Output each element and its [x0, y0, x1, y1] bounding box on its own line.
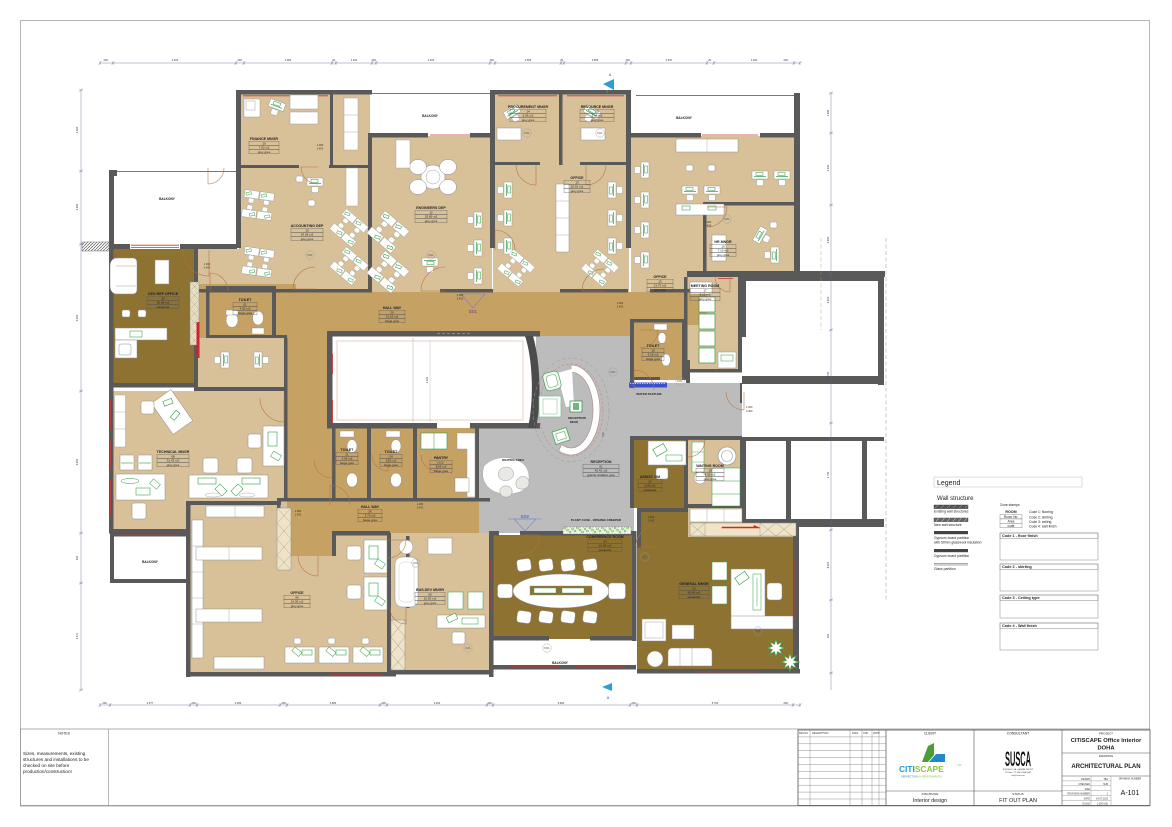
svg-text:grey gres: grey gres [591, 118, 604, 122]
svg-text:Room No.: Room No. [1004, 515, 1018, 519]
svg-text:D01: D01 [642, 555, 648, 559]
svg-text:1.000: 1.000 [204, 262, 211, 266]
svg-text:DATE: DATE [852, 732, 859, 735]
svg-text:200,: 200, [631, 701, 636, 705]
svg-text:7.00: 7.00 [601, 432, 605, 438]
svg-text:5.700: 5.700 [712, 701, 719, 705]
svg-text:1.400: 1.400 [351, 58, 358, 62]
svg-text:grey gres: grey gres [258, 150, 271, 154]
svg-text:beige gres: beige gres [384, 463, 399, 467]
svg-text:200,: 200, [281, 701, 286, 705]
svg-text:2.547: 2.547 [666, 58, 673, 62]
svg-text:grey gres: grey gres [167, 463, 180, 467]
svg-text:BUS.DEV MNGR: BUS.DEV MNGR [416, 588, 444, 592]
svg-text:CONSULTANT: CONSULTANT [1007, 732, 1029, 736]
svg-text:DESCRIPTION: DESCRIPTION [812, 732, 829, 735]
svg-text:TOILET: TOILET [239, 298, 253, 302]
svg-text:3.900: 3.900 [75, 458, 79, 465]
svg-text:TECHNICAL MNGR: TECHNICAL MNGR [157, 450, 190, 454]
svg-text:ARCHITECTURAL PLAN: ARCHITECTURAL PLAN [1071, 764, 1140, 770]
svg-text:4.200: 4.200 [428, 58, 435, 62]
svg-text:20,: 20, [708, 58, 712, 62]
svg-text:FIT OUT PLAN: FIT OUT PLAN [999, 798, 1037, 804]
svg-text:CHECKED: CHECKED [1078, 783, 1090, 786]
svg-text:2.505: 2.505 [525, 58, 532, 62]
svg-text:2.300: 2.300 [75, 126, 79, 133]
svg-text:REVISION NUMBER: REVISION NUMBER [1068, 793, 1091, 796]
svg-text:checked on site before: checked on site before [23, 763, 70, 768]
svg-text:SUSCA LLC AL-QASSIM GROUP: SUSCA LLC AL-QASSIM GROUP [1003, 768, 1034, 771]
svg-text:beige gres: beige gres [238, 311, 253, 315]
svg-text:300: 300 [75, 555, 79, 560]
svg-text:TBA: TBA [1103, 778, 1108, 781]
svg-text:BALKONY: BALKONY [159, 197, 176, 201]
svg-text:8.200: 8.200 [826, 561, 830, 568]
svg-text:D01: D01 [677, 379, 683, 383]
svg-text:OFFICE: OFFICE [653, 275, 667, 279]
svg-text:2.750: 2.750 [826, 471, 830, 478]
svg-text:Code 2 - skirting: Code 2 - skirting [1002, 565, 1032, 569]
svg-text:beige gres: beige gres [434, 469, 449, 473]
svg-text:beige gres: beige gres [646, 357, 661, 361]
svg-text:DRAWING NUMBER: DRAWING NUMBER [1119, 778, 1142, 781]
svg-text:PO Box : PT 456 DOHA QAT: PO Box : PT 456 DOHA QAT [1005, 771, 1031, 774]
svg-text:20,: 20, [332, 58, 336, 62]
svg-text:1.000: 1.000 [648, 515, 655, 519]
svg-text:BALKONY: BALKONY [142, 560, 159, 564]
svg-text:200,: 200, [783, 701, 788, 705]
svg-text:200,: 200, [191, 701, 196, 705]
svg-text:HALL WAY: HALL WAY [361, 505, 380, 509]
svg-text:1.480: 1.480 [826, 109, 830, 116]
svg-text:structures and installations t: structures and installations to be [23, 757, 89, 762]
svg-text:200,: 200, [783, 58, 788, 62]
svg-text:5.000: 5.000 [75, 314, 79, 321]
svg-text:2.400: 2.400 [826, 296, 830, 303]
svg-text:REV.NO: REV.NO [799, 732, 808, 735]
svg-text:Code 1: flooring: Code 1: flooring [1029, 510, 1053, 514]
svg-text:Glass partition: Glass partition [934, 567, 956, 571]
svg-text:2.750: 2.750 [826, 371, 830, 378]
svg-text:grey gres: grey gres [522, 118, 535, 122]
svg-text:production/construction!: production/construction! [23, 769, 72, 774]
svg-text:D01: D01 [465, 646, 471, 650]
svg-text:Gypsum board partition: Gypsum board partition [934, 536, 969, 540]
svg-text:200: 200 [826, 633, 830, 638]
svg-text:ASSIST. GM: ASSIST. GM [640, 475, 660, 479]
svg-text:D01: D01 [413, 561, 419, 565]
svg-text:grey gres: grey gres [571, 189, 584, 193]
svg-text:2.417: 2.417 [75, 632, 79, 639]
svg-text:GENERAL MNGR: GENERAL MNGR [679, 582, 709, 586]
svg-text:1.200: 1.200 [751, 58, 758, 62]
svg-text:beige gres: beige gres [340, 461, 355, 465]
svg-text:2.460: 2.460 [826, 236, 830, 243]
svg-text:E02: E02 [521, 514, 530, 519]
svg-text:grey gres: grey gres [717, 253, 730, 257]
svg-text:2.400: 2.400 [617, 305, 624, 309]
svg-text:NOTES: NOTES [58, 732, 70, 736]
svg-text:20,: 20, [560, 58, 564, 62]
svg-text:1.000: 1.000 [705, 220, 712, 224]
svg-text:2.400: 2.400 [648, 519, 655, 523]
svg-text:Wall structure: Wall structure [937, 496, 974, 502]
svg-text:New wall structure: New wall structure [934, 523, 962, 527]
svg-text:TOILET: TOILET [385, 450, 399, 454]
svg-text:SUB: SUB [1103, 783, 1108, 786]
svg-text:34.07.2013: 34.07.2013 [1096, 798, 1109, 801]
svg-text:PERFECTION IN PERFORMANCE: PERFECTION IN PERFORMANCE [901, 775, 942, 779]
svg-text:2.555: 2.555 [592, 58, 599, 62]
svg-text:parquette: parquette [644, 488, 657, 492]
svg-text:PROJECT: PROJECT [1099, 732, 1113, 736]
svg-text:HALL WAY: HALL WAY [383, 306, 402, 310]
svg-text:D01: D01 [428, 253, 434, 257]
svg-text:grey gres: grey gres [699, 297, 712, 301]
svg-text:DISCIPLINE: DISCIPLINE [922, 792, 939, 796]
svg-text:grey gres: grey gres [425, 219, 438, 223]
svg-text:BALKONY: BALKONY [422, 114, 439, 118]
svg-text:beige gres: beige gres [385, 319, 400, 323]
svg-text:DESK: DESK [570, 420, 579, 424]
svg-text:3.000: 3.000 [285, 58, 292, 62]
svg-text:2.100: 2.100 [425, 376, 429, 383]
svg-text:FINANCE MNGR: FINANCE MNGR [250, 137, 278, 141]
svg-text:RESOURCE MNGR: RESOURCE MNGR [581, 105, 614, 109]
svg-text:CITISCAPE: CITISCAPE [899, 764, 944, 774]
svg-text:granite imitation gres: granite imitation gres [587, 473, 615, 477]
svg-text:SIZE: SIZE [1085, 788, 1091, 791]
svg-text:parquette: parquette [599, 548, 612, 552]
svg-text:2.400: 2.400 [705, 224, 712, 228]
svg-text:grey gres: grey gres [704, 477, 717, 481]
svg-text:Existing wall structures: Existing wall structures [934, 510, 969, 514]
svg-text:2.677: 2.677 [147, 701, 154, 705]
svg-text:2.400: 2.400 [457, 297, 464, 301]
svg-text:Code 2: skirting: Code 2: skirting [1029, 515, 1053, 519]
svg-text:1:200 (A3): 1:200 (A3) [1097, 803, 1108, 806]
svg-text:Zone stamps: Zone stamps [1000, 503, 1020, 507]
svg-text:2.400: 2.400 [746, 409, 753, 413]
svg-text:Gypsum board partition: Gypsum board partition [934, 554, 969, 558]
svg-text:2.350: 2.350 [75, 203, 79, 210]
svg-text:RECEPTION: RECEPTION [591, 460, 612, 464]
svg-text:1.000: 1.000 [746, 405, 753, 409]
svg-text:OFFICE: OFFICE [290, 591, 304, 595]
svg-text:WATER FEATURE: WATER FEATURE [636, 392, 661, 396]
svg-text:2.400: 2.400 [204, 266, 211, 270]
svg-text:CHK: CHK [863, 732, 868, 735]
svg-text:CITISCAPE Office Interior: CITISCAPE Office Interior [1071, 738, 1142, 744]
svg-text:WAITING AREA: WAITING AREA [502, 458, 525, 462]
svg-text:CONFERENCE ROOM: CONFERENCE ROOM [586, 535, 623, 539]
svg-text:grey gres: grey gres [291, 604, 304, 608]
svg-text:beige gres: beige gres [363, 518, 378, 522]
svg-text:D01: D01 [524, 131, 530, 135]
svg-text:A-101: A-101 [1121, 790, 1140, 797]
svg-text:200,: 200, [102, 701, 107, 705]
svg-text:A: A [609, 72, 612, 77]
svg-text:E01: E01 [469, 309, 478, 314]
svg-text:3.800: 3.800 [330, 701, 337, 705]
svg-text:ROOM: ROOM [1005, 510, 1016, 514]
svg-text:ACCOUNTING DEP: ACCOUNTING DEP [291, 224, 324, 228]
svg-text:DRAWN: DRAWN [1081, 778, 1090, 781]
svg-text:Code 3 - Ceiling type: Code 3 - Ceiling type [1002, 596, 1040, 600]
svg-text:MEETING ROOM: MEETING ROOM [691, 284, 720, 288]
svg-text:Legend: Legend [937, 480, 960, 487]
svg-text:PLANT CASE - VIRGINIA CREEPER: PLANT CASE - VIRGINIA CREEPER [571, 518, 622, 522]
svg-text:CEO REP OFFICE: CEO REP OFFICE [148, 292, 179, 296]
svg-text:PROCUREMENT MNGR: PROCUREMENT MNGR [508, 105, 549, 109]
svg-text:grey gres: grey gres [301, 237, 314, 241]
svg-text:DATE: DATE [1084, 798, 1091, 801]
svg-text:TM: TM [957, 763, 962, 767]
svg-text:200,: 200, [103, 58, 108, 62]
svg-text:D01: D01 [755, 629, 761, 633]
svg-text:PANTRY: PANTRY [434, 456, 449, 460]
svg-text:OFFICE: OFFICE [570, 176, 584, 180]
svg-text:with 50mm glasswool insulation: with 50mm glasswool insulation [934, 540, 982, 544]
svg-text:DOHA: DOHA [1097, 746, 1115, 752]
svg-text:grey gres: grey gres [424, 601, 437, 605]
svg-text:Interior design: Interior design [913, 798, 947, 804]
svg-text:APPR: APPR [873, 732, 880, 735]
svg-text:2.400: 2.400 [295, 513, 302, 517]
svg-text:D01: D01 [610, 370, 616, 374]
svg-text:HR MNGR: HR MNGR [714, 240, 732, 244]
svg-text:BALKONY: BALKONY [552, 661, 569, 665]
svg-text:2.400: 2.400 [317, 147, 324, 151]
svg-text:200,: 200, [237, 58, 242, 62]
svg-text:1.000: 1.000 [617, 301, 624, 305]
svg-text:D01: D01 [544, 646, 550, 650]
svg-text:code: code [1008, 524, 1015, 528]
svg-text:Code 4: wall finish: Code 4: wall finish [1029, 524, 1057, 528]
svg-text:200,: 200, [371, 58, 376, 62]
svg-text:TOILET: TOILET [647, 344, 661, 348]
svg-text:200,: 200, [489, 58, 494, 62]
svg-text:BALKONY: BALKONY [676, 116, 693, 120]
svg-text:TOILET: TOILET [341, 448, 355, 452]
svg-text:3.400: 3.400 [434, 701, 441, 705]
svg-text:1.000: 1.000 [417, 502, 424, 506]
svg-text:1.000: 1.000 [457, 293, 464, 297]
svg-text:Code 1 - floor finish: Code 1 - floor finish [1002, 534, 1038, 538]
svg-text:1.000: 1.000 [317, 143, 324, 147]
svg-text:grey grls: grey grls [654, 288, 666, 292]
svg-text:info@susca.ae: info@susca.ae [1011, 775, 1025, 777]
svg-text:ENGINEERS DEP: ENGINEERS DEP [416, 206, 446, 210]
svg-text:D01: D01 [597, 131, 603, 135]
svg-text:DRAWING: DRAWING [1099, 754, 1114, 758]
svg-text:SCALE: SCALE [1082, 803, 1090, 806]
svg-text:CLIENT: CLIENT [924, 732, 936, 736]
svg-text:A: A [607, 695, 610, 700]
svg-text:200,: 200, [625, 58, 630, 62]
svg-text:Area: Area [1008, 519, 1015, 523]
svg-text:200,: 200, [381, 701, 386, 705]
svg-text:parquette: parquette [157, 305, 170, 309]
svg-text:3.320: 3.320 [826, 164, 830, 171]
svg-text:200,: 200, [487, 701, 492, 705]
svg-text:3.000: 3.000 [235, 701, 242, 705]
svg-text:Code 4 - Wall finish: Code 4 - Wall finish [1002, 624, 1038, 628]
svg-text:D01: D01 [307, 253, 313, 257]
svg-text:parquette: parquette [688, 595, 701, 599]
svg-text:5.900: 5.900 [558, 701, 565, 705]
svg-text:Sizes, measurements, existing: Sizes, measurements, existing [23, 751, 86, 756]
svg-text:1.000: 1.000 [295, 509, 302, 513]
svg-text:WAITING ROOM: WAITING ROOM [696, 464, 724, 468]
svg-text:2.400: 2.400 [417, 506, 424, 510]
svg-text:D01: D01 [724, 217, 730, 221]
svg-text:STATUS: STATUS [1012, 792, 1023, 796]
svg-text:4.400: 4.400 [172, 58, 179, 62]
